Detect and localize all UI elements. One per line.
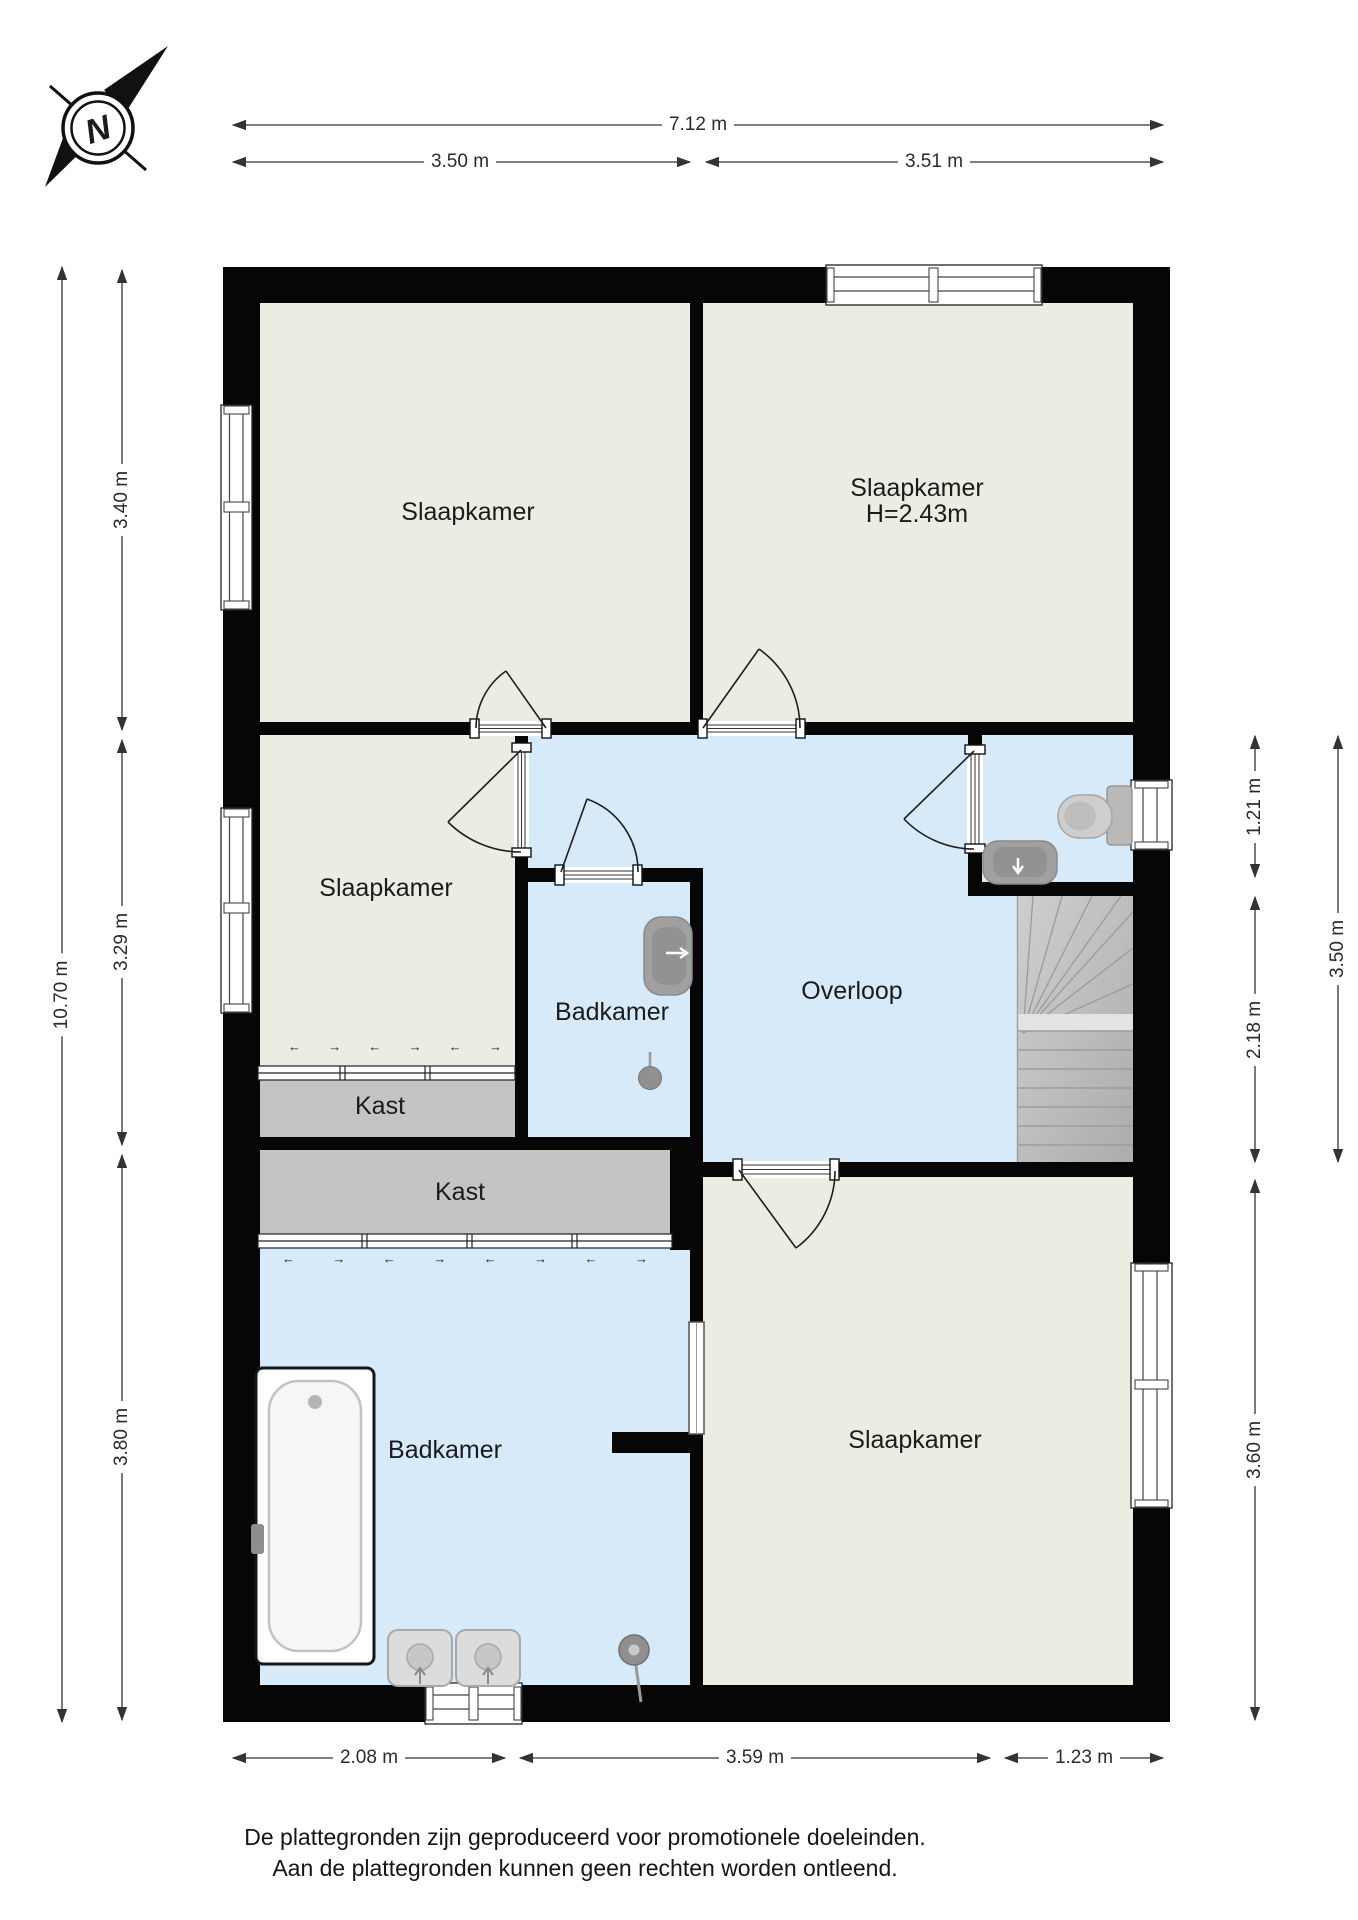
floor-bedroom-middle-left — [240, 735, 520, 1075]
room-label-bathroom-bottom: Badkamer — [388, 1437, 502, 1463]
disclaimer-line-2: Aan de plattegronden kunnen geen rechten… — [244, 1853, 926, 1884]
disclaimer: De plattegronden zijn geproduceerd voor … — [244, 1822, 926, 1884]
wardrobe-marks-closet-bottom: ← → ← → ← → ← → — [282, 1252, 648, 1266]
tick-icon: → — [635, 1252, 648, 1266]
room-label-landing: Overloop — [801, 978, 902, 1004]
window-bedroom-bottom-right — [1131, 1263, 1172, 1508]
tick-icon: ← — [368, 1040, 381, 1054]
tick-icon: ← — [288, 1040, 301, 1054]
room-label-bedroom-top-right: Slaapkamer H=2.43m — [850, 475, 983, 527]
room-label-bathroom-middle: Badkamer — [555, 999, 669, 1025]
room-label-closet-bottom: Kast — [435, 1179, 485, 1205]
dim-bottom-1: 2.08 m — [333, 1746, 405, 1770]
bath-faucet-icon — [251, 1524, 264, 1554]
floorplan-page: N Slaapkamer Slaapkamer H=2.43m Slaapkam… — [0, 0, 1358, 1920]
window-bedroom-middle-left — [221, 808, 252, 1013]
washbasin-toilet — [983, 841, 1057, 884]
tick-icon: → — [328, 1040, 341, 1054]
dim-right-2: 2.18 m — [1243, 994, 1267, 1066]
tick-icon: → — [489, 1040, 502, 1054]
shower-screen — [689, 1322, 704, 1434]
window-bedroom-top-right — [826, 265, 1042, 305]
disclaimer-line-1: De plattegronden zijn geproduceerd voor … — [244, 1822, 926, 1853]
dim-right-1: 1.21 m — [1243, 771, 1267, 843]
dim-left-total: 10.70 m — [50, 954, 74, 1037]
dim-top-right: 3.51 m — [898, 150, 970, 174]
dim-left-2: 3.29 m — [110, 906, 134, 978]
dim-top-left: 3.50 m — [424, 150, 496, 174]
bathtub — [251, 1368, 374, 1664]
room-label-bedroom-bottom-right: Slaapkamer — [848, 1427, 981, 1453]
window-bedroom-top-left — [221, 405, 252, 610]
dim-bottom-3: 1.23 m — [1048, 1746, 1120, 1770]
tick-icon: ← — [585, 1252, 598, 1266]
room-height-note: H=2.43m — [850, 501, 983, 527]
washbasin-middle-bathroom — [644, 917, 692, 995]
tick-icon: ← — [282, 1252, 295, 1266]
dim-left-3: 3.80 m — [110, 1401, 134, 1473]
tick-icon: ← — [383, 1252, 396, 1266]
dim-right-3: 3.60 m — [1243, 1414, 1267, 1486]
staircase — [1017, 896, 1133, 1162]
room-label-text: Slaapkamer — [850, 475, 983, 501]
dim-left-1: 3.40 m — [110, 464, 134, 536]
tick-icon: ← — [484, 1252, 497, 1266]
tick-icon: → — [433, 1252, 446, 1266]
tick-icon: → — [332, 1252, 345, 1266]
room-label-closet-top: Kast — [355, 1093, 405, 1119]
dim-right-total: 3.50 m — [1326, 913, 1350, 985]
dim-bottom-2: 3.59 m — [719, 1746, 791, 1770]
tick-icon: → — [534, 1252, 547, 1266]
floorplan-graphics — [0, 0, 1358, 1920]
room-label-bedroom-top-left: Slaapkamer — [401, 499, 534, 525]
window-toilet — [1131, 780, 1172, 850]
room-label-bedroom-middle-left: Slaapkamer — [319, 875, 452, 901]
wardrobe-marks-closet-top: ← → ← → ← → — [288, 1040, 502, 1054]
tick-icon: → — [409, 1040, 422, 1054]
dim-top-total: 7.12 m — [662, 113, 734, 137]
tick-icon: ← — [449, 1040, 462, 1054]
window-bathroom-bottom — [425, 1683, 522, 1724]
